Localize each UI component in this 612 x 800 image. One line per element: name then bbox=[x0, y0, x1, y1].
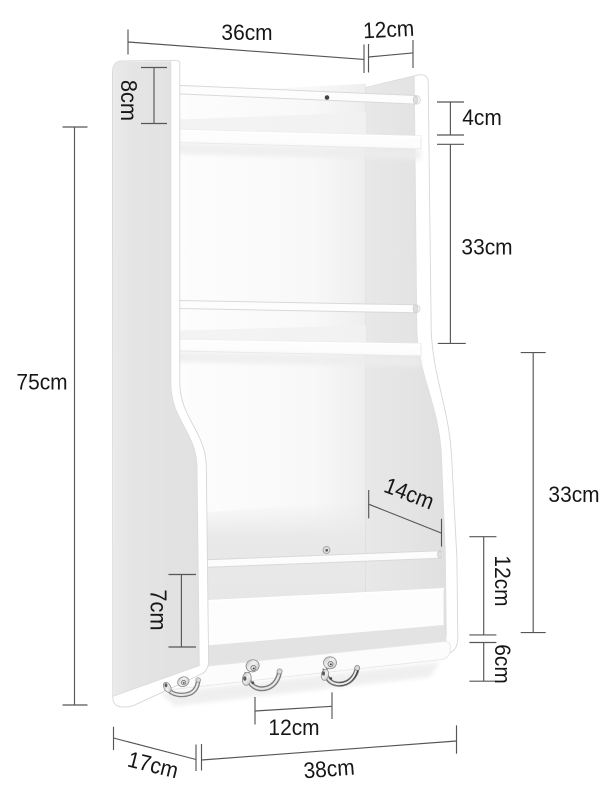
svg-text:75cm: 75cm bbox=[16, 369, 67, 395]
svg-text:12cm: 12cm bbox=[268, 714, 319, 740]
svg-text:38cm: 38cm bbox=[303, 754, 356, 784]
svg-text:7cm: 7cm bbox=[145, 589, 172, 630]
svg-text:33cm: 33cm bbox=[548, 481, 599, 507]
svg-text:8cm: 8cm bbox=[116, 80, 143, 121]
svg-text:36cm: 36cm bbox=[221, 19, 272, 45]
svg-text:4cm: 4cm bbox=[462, 104, 502, 130]
svg-text:12cm: 12cm bbox=[362, 15, 414, 44]
svg-text:33cm: 33cm bbox=[461, 234, 512, 260]
svg-text:6cm: 6cm bbox=[490, 644, 516, 684]
svg-text:12cm: 12cm bbox=[490, 555, 516, 606]
